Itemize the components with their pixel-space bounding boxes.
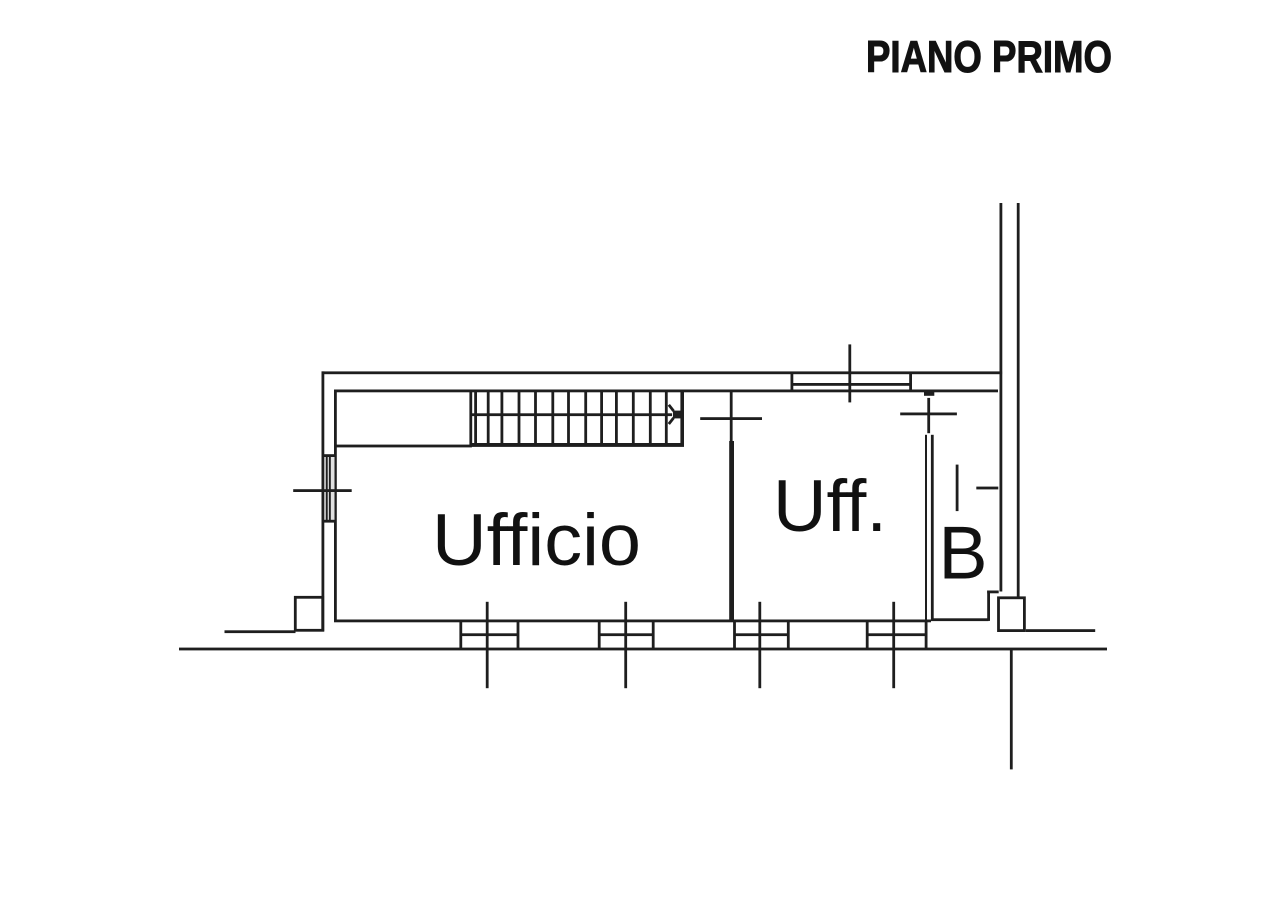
svg-text:PIANO PRIMO: PIANO PRIMO [866,33,1112,82]
svg-text:B: B [939,511,988,595]
svg-text:Ufficio: Ufficio [432,500,641,581]
svg-text:Uff.: Uff. [773,466,887,547]
